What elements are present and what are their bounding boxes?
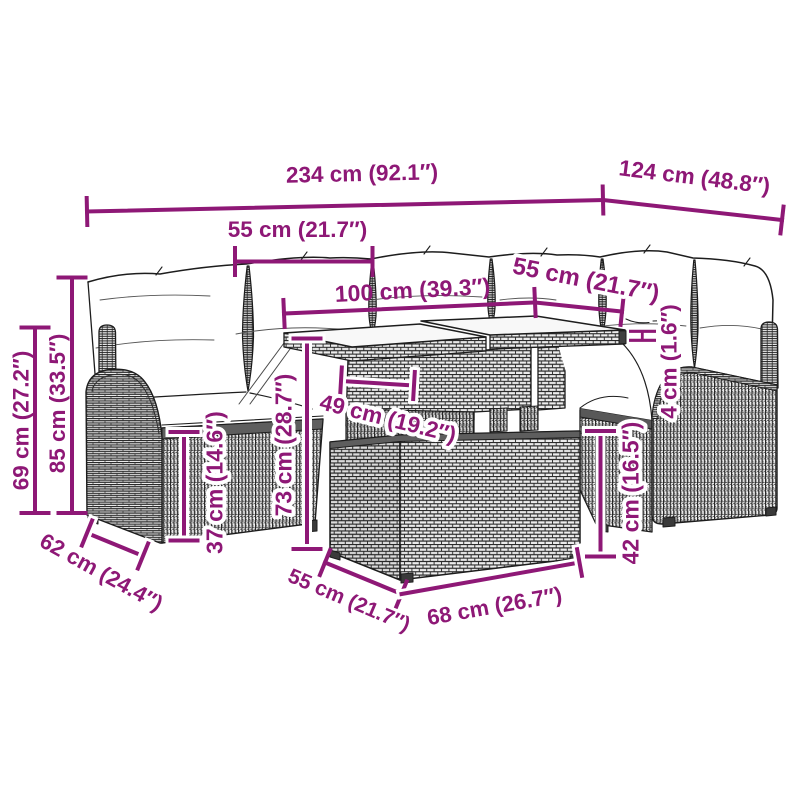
svg-text:234 cm (92.1″): 234 cm (92.1″) — [286, 159, 439, 187]
svg-text:37 cm (14.6″): 37 cm (14.6″) — [202, 411, 228, 554]
svg-text:42 cm (16.5″): 42 cm (16.5″) — [618, 422, 644, 565]
svg-text:69 cm (27.2″): 69 cm (27.2″) — [9, 351, 34, 491]
svg-text:73 cm (28.7″): 73 cm (28.7″) — [271, 374, 297, 517]
svg-text:85 cm (33.5″): 85 cm (33.5″) — [45, 334, 70, 474]
svg-text:4 cm (1.6″): 4 cm (1.6″) — [657, 304, 682, 419]
svg-text:55 cm (21.7″): 55 cm (21.7″) — [228, 217, 368, 242]
